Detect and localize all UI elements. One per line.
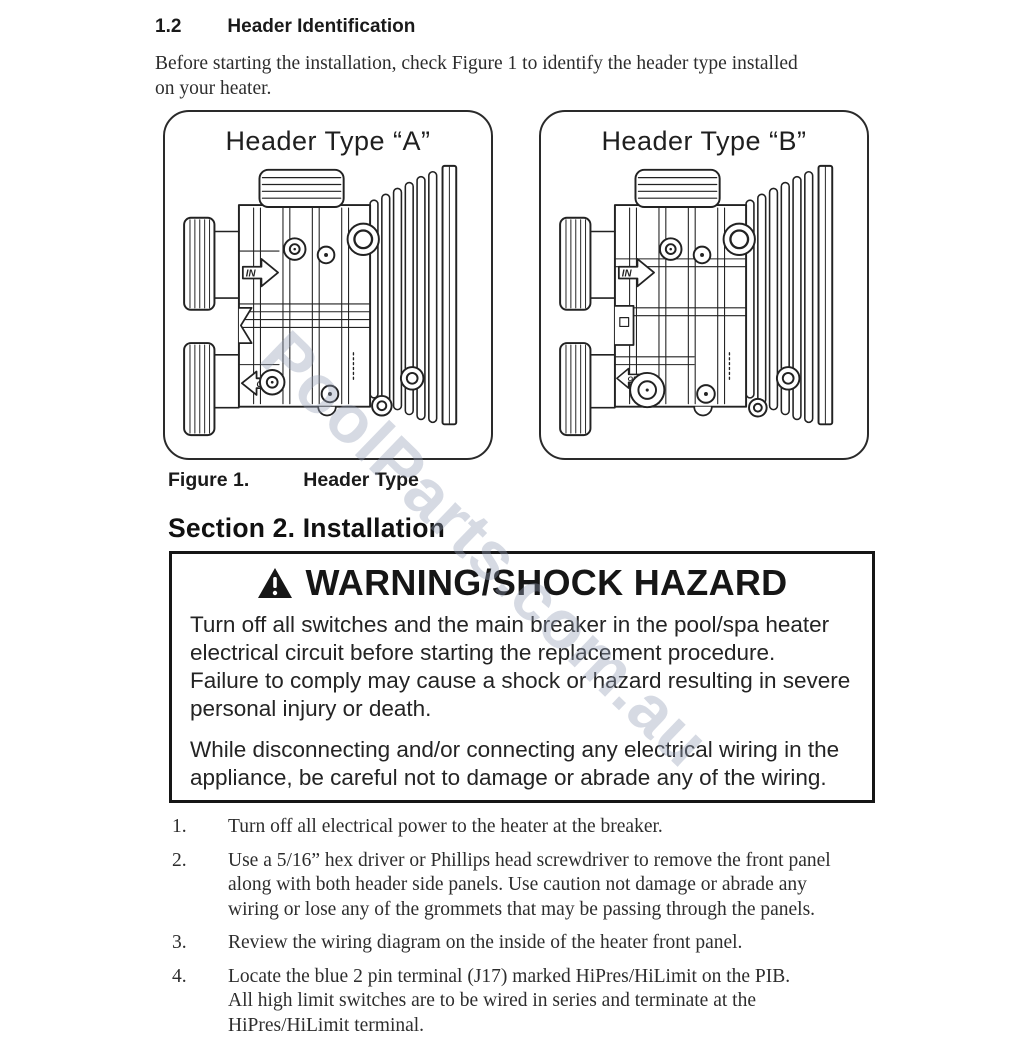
header-diagram-a: IN OUT — [177, 161, 479, 439]
warning-icon — [257, 567, 293, 599]
warning-box: WARNING/SHOCK HAZARD Turn off all switch… — [169, 551, 875, 803]
intro-paragraph: Before starting the installation, check … — [155, 51, 894, 101]
figure-b-title: Header Type “B” — [541, 126, 867, 157]
step-1: 1. Turn off all electrical power to the … — [172, 815, 894, 840]
section2-heading: Section 2. Installation — [168, 513, 894, 544]
section1-number: 1.2 — [155, 16, 181, 38]
section1-heading: 1.2 Header Identification — [155, 16, 894, 38]
warning-paragraph-2: While disconnecting and/or connecting an… — [190, 736, 856, 792]
warning-header: WARNING/SHOCK HAZARD — [188, 562, 856, 604]
figure-a-title: Header Type “A” — [165, 126, 491, 157]
step-number: 3. — [172, 931, 228, 956]
header-diagram-b: IN OUT — [553, 161, 855, 439]
manual-page: PoolParts.com.au 1.2 Header Identificati… — [0, 0, 1024, 1024]
warning-title: WARNING/SHOCK HAZARD — [306, 562, 788, 604]
step-text: Turn off all electrical power to the hea… — [228, 815, 663, 840]
figure-caption-number: Figure 1. — [168, 469, 249, 492]
figure-caption-title: Header Type — [303, 469, 419, 492]
warning-paragraph-1: Turn off all switches and the main break… — [190, 611, 856, 723]
installation-steps: 1. Turn off all electrical power to the … — [155, 815, 894, 1038]
figure-caption: Figure 1. Header Type — [168, 469, 894, 492]
in-arrow-icon: IN — [622, 269, 633, 280]
section1-title: Header Identification — [227, 16, 415, 38]
step-number: 2. — [172, 849, 228, 923]
step-4: 4. Locate the blue 2 pin terminal (J17) … — [172, 965, 894, 1038]
step-number: 4. — [172, 965, 228, 1038]
step-3: 3. Review the wiring diagram on the insi… — [172, 931, 894, 956]
step-text: Use a 5/16” hex driver or Phillips head … — [228, 849, 831, 923]
in-arrow-icon: IN — [246, 269, 257, 280]
step-number: 1. — [172, 815, 228, 840]
figure-box-b: Header Type “B” — [539, 110, 869, 460]
figure-box-a: Header Type “A” — [163, 110, 493, 460]
figure-row: Header Type “A” — [163, 110, 894, 460]
step-text: Locate the blue 2 pin terminal (J17) mar… — [228, 965, 790, 1038]
step-2: 2. Use a 5/16” hex driver or Phillips he… — [172, 849, 894, 923]
step-text: Review the wiring diagram on the inside … — [228, 931, 742, 956]
